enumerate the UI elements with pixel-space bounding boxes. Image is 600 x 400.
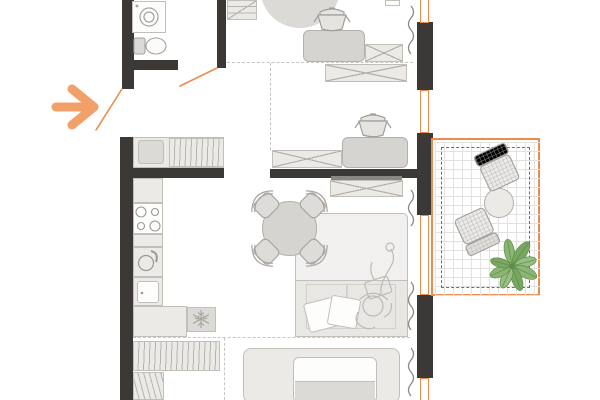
window-balcony-door <box>420 215 429 295</box>
storage-box-2 <box>325 64 407 82</box>
entrance-arrow-icon <box>56 89 94 125</box>
storage-box-1 <box>365 44 403 62</box>
wall-bathroom-stub <box>134 60 178 70</box>
hall-closet-hanging <box>169 138 224 167</box>
kitchen-stove <box>133 203 163 234</box>
window-upper <box>420 90 429 133</box>
wall-hall-horizontal <box>133 168 224 178</box>
wall-right-a <box>417 22 433 90</box>
storage-box-3 <box>272 150 342 168</box>
hall-closet-box <box>138 140 164 164</box>
bed-blanket <box>295 381 375 400</box>
divider-top-bedroom <box>227 62 413 63</box>
floor-plan <box>0 0 600 400</box>
window-bottom <box>420 378 429 400</box>
dining-table <box>262 201 317 256</box>
kitchen-basin <box>137 281 159 303</box>
shelf-small <box>385 0 400 6</box>
round-rug <box>260 0 340 28</box>
armchair-mid <box>342 137 408 168</box>
wall-right-c <box>417 295 433 378</box>
divider-sleeping-vertical <box>224 338 225 400</box>
fridge <box>187 307 216 332</box>
divider-sleeping <box>133 337 410 338</box>
tv-console <box>330 180 403 197</box>
washing-machine <box>132 1 166 33</box>
dresser <box>227 0 257 20</box>
window-top <box>420 0 429 23</box>
door-swing-lines <box>96 68 217 130</box>
armchair-top <box>303 30 365 62</box>
plant-pot-mid <box>355 114 391 137</box>
wardrobe-large <box>133 341 220 371</box>
kitchen-counter-bottom <box>133 306 187 337</box>
wall-main-left <box>120 137 133 400</box>
wall-entry-right <box>217 0 226 68</box>
divider-mid-vertical <box>270 63 271 150</box>
balcony-table <box>484 188 514 218</box>
pillow-2 <box>327 295 362 330</box>
toilet-icon <box>134 38 166 54</box>
balcony <box>431 138 540 296</box>
balcony-dashed-border <box>441 147 530 288</box>
kitchen-counter-top <box>133 178 163 203</box>
wardrobe-small <box>133 372 164 400</box>
kitchen-cabinet <box>133 234 163 247</box>
kitchen-sink-unit <box>133 247 163 277</box>
